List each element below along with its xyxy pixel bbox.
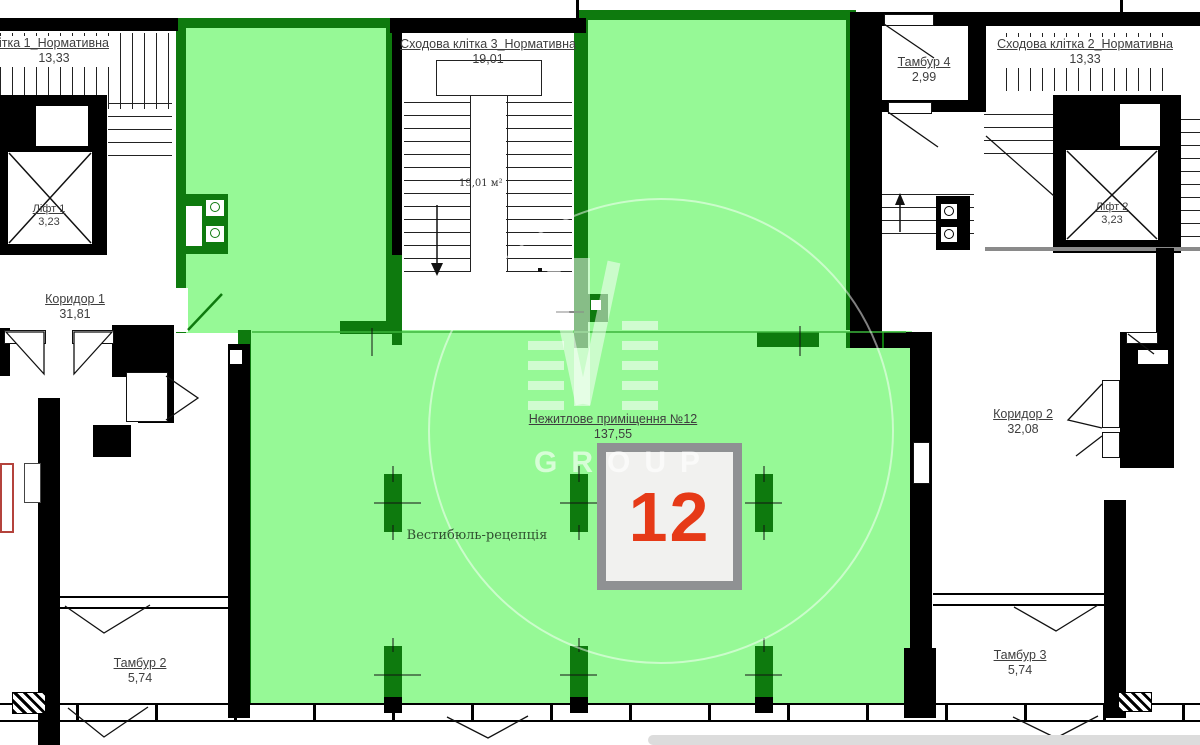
koridor2-name: Коридор 2 (993, 407, 1053, 422)
tambur4-label: Тамбур 4 2,99 (898, 55, 951, 86)
staircase3-inner-area: 19,01 м² (459, 178, 503, 189)
tambur2-name: Тамбур 2 (114, 656, 167, 671)
koridor1-name: Коридор 1 (45, 292, 105, 307)
premise12-area: 137,55 (529, 427, 697, 442)
lift2-name: Ліфт 2 (1096, 201, 1129, 214)
staircase3-name: Сходова клітка 3_Нормативна (400, 37, 576, 52)
staircase2-name: Сходова клітка 2_Нормативна (997, 37, 1173, 52)
staircase1-area: 13,33 (0, 51, 109, 66)
lift1-label: Ліфт 1 3,23 (33, 203, 66, 230)
staircase3-area: 19,01 (400, 52, 576, 67)
premise12-name: Нежитлове приміщення №12 (529, 412, 697, 427)
unit-number-badge: 12 (597, 443, 742, 590)
door-swings (6, 24, 1154, 738)
lift1-name: Ліфт 1 (33, 203, 66, 216)
tambur2-area: 5,74 (114, 671, 167, 686)
tambur4-name: Тамбур 4 (898, 55, 951, 70)
vestibule-label: Вестибюль-рецепція (407, 528, 548, 543)
koridor1-label: Коридор 1 31,81 (45, 292, 105, 323)
koridor2-label: Коридор 2 32,08 (993, 407, 1053, 438)
tambur2-label: Тамбур 2 5,74 (114, 656, 167, 687)
stair2-direction-arrow-icon (895, 136, 1054, 232)
bottom-scroll-shadow (648, 735, 1200, 745)
staircase2-label: Сходова клітка 2_Нормативна 13,33 (994, 37, 1176, 68)
staircase3-label: Сходова клітка 3_Нормативна 19,01 (400, 37, 576, 68)
tambur3-area: 5,74 (994, 663, 1047, 678)
lift2-area: 3,23 (1096, 214, 1129, 227)
staircase1-name: ітка 1_Нормативна (0, 36, 109, 51)
lift1-area: 3,23 (33, 216, 66, 229)
koridor2-area: 32,08 (993, 422, 1053, 437)
premise12-label: Нежитлове приміщення №12 137,55 (529, 412, 697, 443)
green-door-leaf (188, 294, 222, 330)
lift2-label: Ліфт 2 3,23 (1096, 201, 1129, 228)
tambur3-name: Тамбур 3 (994, 648, 1047, 663)
staircase1-label: ітка 1_Нормативна 13,33 (0, 36, 112, 67)
staircase2-area: 13,33 (997, 52, 1173, 67)
floor-plan: 12 GROUP ітка 1_Нормативна 13,33 Сходова… (0, 0, 1200, 745)
plan-linework (0, 0, 1200, 745)
unit-number: 12 (629, 477, 711, 557)
stair3-direction-arrow-icon (431, 205, 542, 276)
koridor1-area: 31,81 (45, 307, 105, 322)
tambur3-label: Тамбур 3 5,74 (994, 648, 1047, 679)
tambur4-area: 2,99 (898, 70, 951, 85)
